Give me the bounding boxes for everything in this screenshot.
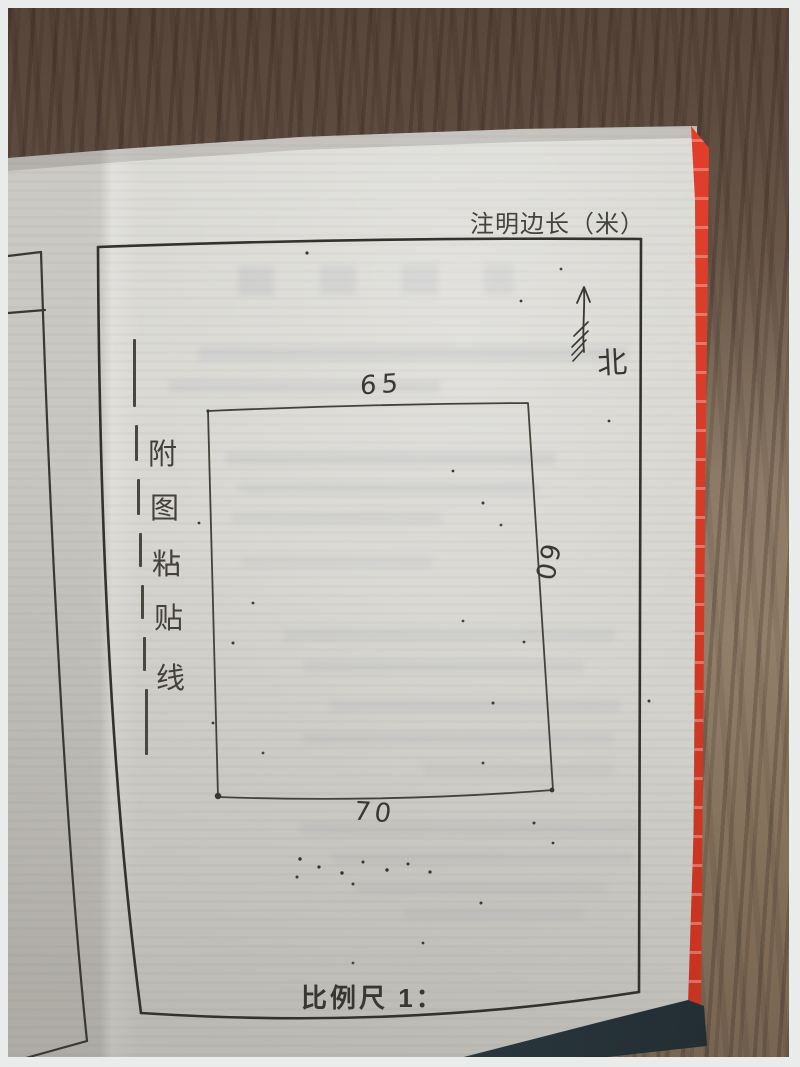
photo-border-bottom (0, 1057, 800, 1067)
header-note: 注明边长（米） (470, 204, 645, 239)
paste-line-dash (143, 637, 146, 671)
parcel-dimension-top: 65 (360, 368, 404, 401)
photo-border-top (0, 0, 800, 8)
paste-line-dash (139, 533, 142, 567)
paste-line-dash (135, 425, 138, 461)
paste-line-dash (137, 479, 140, 515)
paste-line-dash (141, 585, 144, 619)
paste-line-dash (145, 689, 148, 755)
paste-line-dash (133, 339, 136, 407)
photo-border-left (0, 0, 8, 1067)
north-label: 北 (596, 337, 628, 383)
photo-of-survey-booklet: 注明边长（米） 北 65 60 70 比例尺 1： 附 图 粘 贴 线 (0, 0, 800, 1067)
parcel-outline (206, 403, 554, 799)
paste-line-char: 图 (150, 485, 179, 527)
photo-border-right (789, 0, 800, 1067)
paste-line-char: 线 (156, 655, 185, 697)
left-page-table-lines (8, 252, 87, 1061)
parcel-dimension-bottom: 70 (352, 797, 397, 830)
scale-label: 比例尺 1： (301, 978, 445, 1015)
linework-layer (0, 0, 800, 1067)
north-arrow-icon (572, 287, 590, 361)
paste-line-char: 附 (148, 431, 177, 473)
paste-line-char: 贴 (154, 595, 183, 637)
paste-line-column: 附 图 粘 贴 线 (128, 337, 192, 767)
paste-line-char: 粘 (152, 541, 181, 583)
